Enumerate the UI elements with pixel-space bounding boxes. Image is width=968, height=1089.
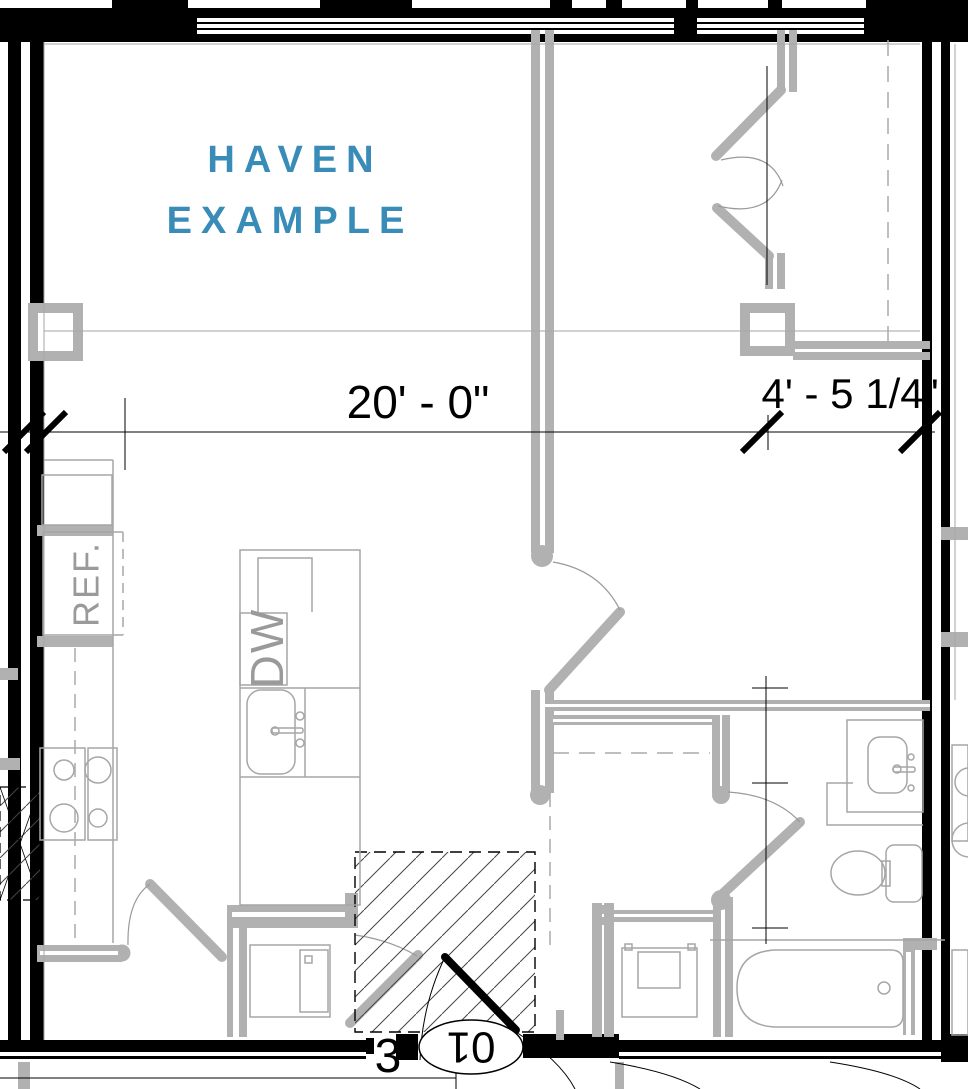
unit-title-line1: HAVEN [207, 139, 382, 181]
refrigerator-label: REF. [66, 541, 107, 627]
kitchen-entry-door-leaf [150, 884, 222, 957]
cooktop [40, 748, 117, 840]
reference-lines [752, 66, 788, 944]
unit-title: HAVEN EXAMPLE [167, 139, 414, 242]
kitchen-island [240, 550, 360, 905]
dishwasher-label: DW [241, 608, 293, 689]
door-swing-arcs [128, 157, 800, 956]
dimension-label-bedroom: 4' - 5 1/4" [761, 370, 938, 417]
party-wall-right [922, 18, 932, 1045]
callout-sheet-number: 01 [447, 1023, 496, 1072]
callout-detail-number: 3 [375, 1030, 402, 1083]
dimension-string: 20' - 0" 4' - 5 1/4" [0, 370, 940, 470]
bedroom-door-leaf [549, 612, 620, 690]
dimension-label-living: 20' - 0" [347, 376, 490, 428]
floor-plan-drawing: 20' - 0" 4' - 5 1/4" HAVEN EXAMPLE REF. … [0, 0, 968, 1089]
bathroom-door-leaf [716, 822, 800, 900]
washer-dryer [622, 944, 697, 1017]
unit-title-line2: EXAMPLE [167, 200, 414, 242]
vanity-sink [868, 737, 907, 793]
window-sill [197, 34, 864, 42]
closet-angled-wall-lower [717, 208, 769, 256]
floor-plan-sheet: 20' - 0" 4' - 5 1/4" HAVEN EXAMPLE REF. … [0, 0, 968, 1089]
upper-cabinet [42, 475, 112, 525]
pantry-cabinet [250, 945, 330, 1017]
closet-angled-wall-upper [716, 90, 781, 156]
bathroom-vanity [827, 720, 923, 825]
tub-drain [878, 982, 890, 994]
section-callout: 3 01 [375, 1020, 523, 1083]
toilet [831, 845, 922, 902]
